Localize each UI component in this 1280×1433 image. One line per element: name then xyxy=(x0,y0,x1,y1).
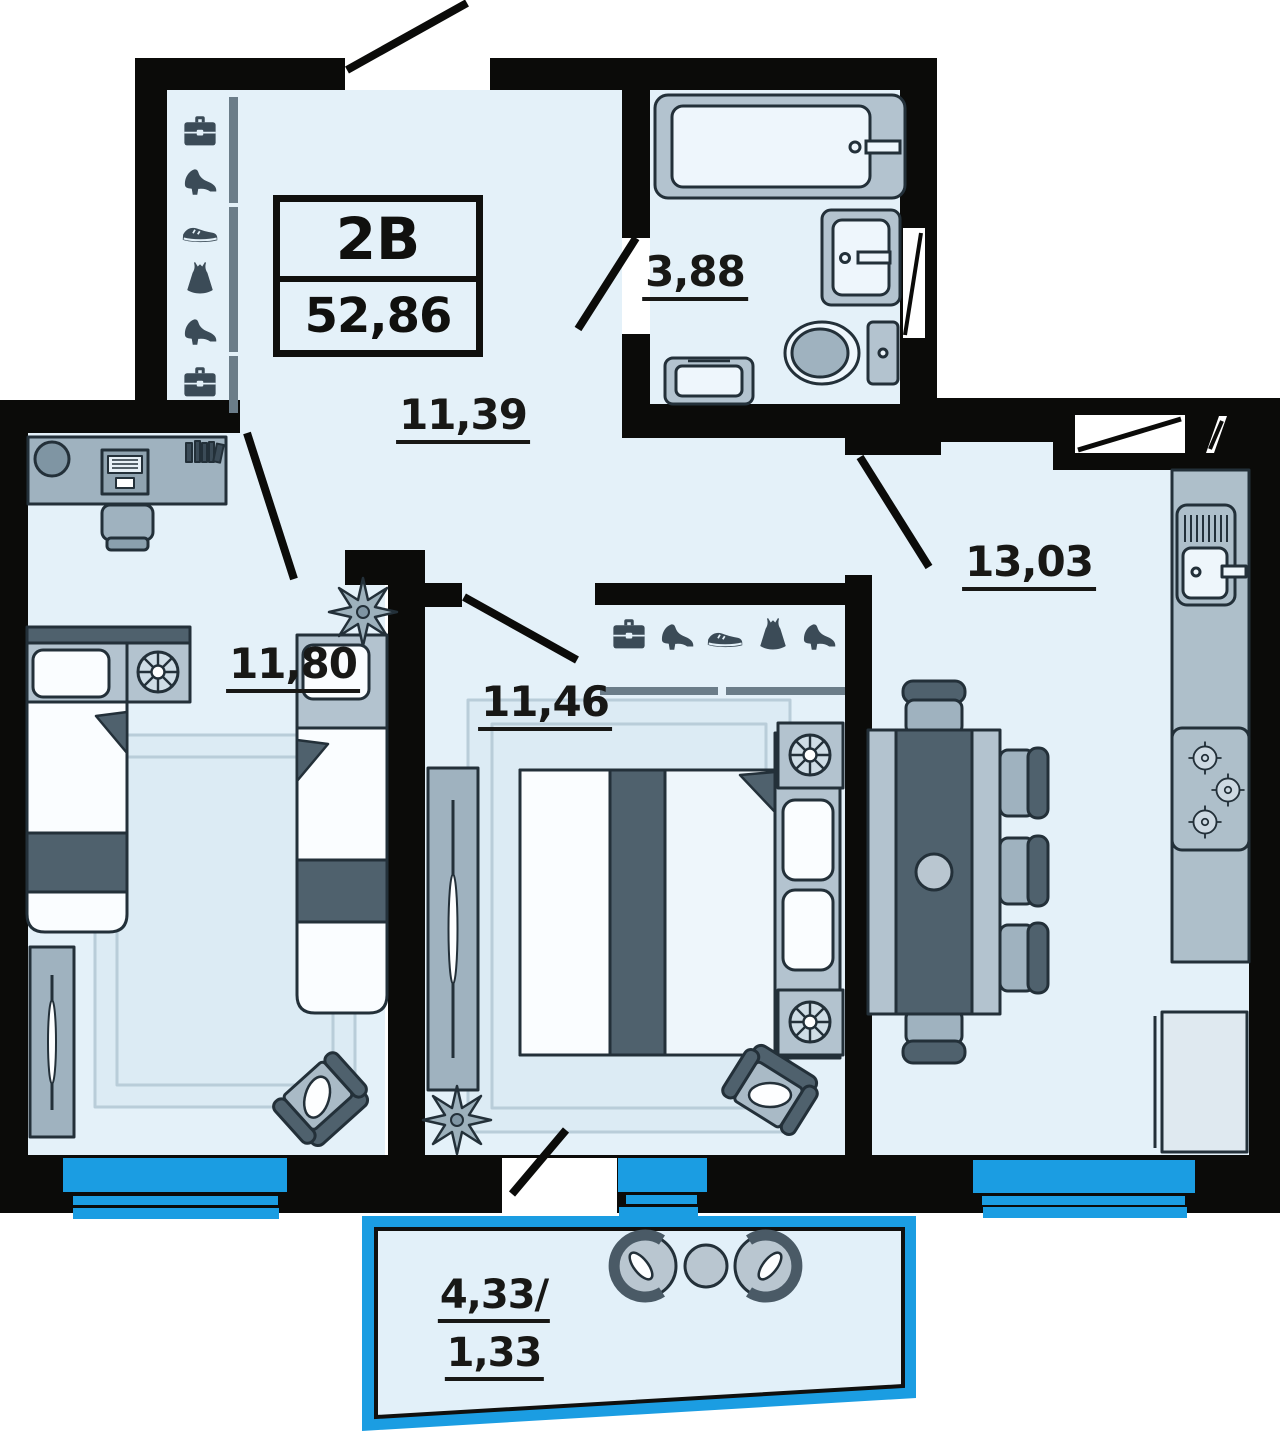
bathroom-area-label: 3,88 xyxy=(642,251,748,301)
bathtub-icon xyxy=(655,95,905,198)
title-box: 2В 52,86 xyxy=(273,195,483,357)
kitchen-door xyxy=(860,457,929,567)
windows xyxy=(63,1158,1195,1219)
dining-table xyxy=(868,681,1048,1063)
floor-plan: 2В 52,86 11,39 3,88 13,03 11,80 11,46 4,… xyxy=(0,0,1280,1433)
plant-icon xyxy=(423,1086,491,1154)
bathroom-door xyxy=(578,238,636,329)
plant-icon xyxy=(329,578,397,646)
hall-wardrobe-icons xyxy=(183,116,218,396)
bedroom2-window xyxy=(618,1158,707,1192)
heel-icon xyxy=(804,624,835,649)
balcony-area-full: 4,33/ xyxy=(438,1275,550,1323)
bed-headboard xyxy=(27,627,190,644)
heel-icon xyxy=(662,624,693,649)
total-area-label: 52,86 xyxy=(280,282,476,350)
balcony-area-label: 4,33/ 1,33 xyxy=(438,1275,550,1381)
balcony-chair-right xyxy=(735,1235,797,1297)
stool-icon xyxy=(35,442,69,476)
bedroom1-furniture xyxy=(27,437,387,1153)
toilet-icon xyxy=(785,322,898,384)
bedroom2-furniture xyxy=(428,700,843,1137)
computer-icon xyxy=(102,450,148,494)
bedroom2-area-label: 11,46 xyxy=(478,681,612,731)
dress-icon xyxy=(760,618,786,649)
balcony-table xyxy=(685,1245,727,1287)
washbasin-icon xyxy=(822,210,900,305)
briefcase-icon xyxy=(184,116,215,145)
dresser xyxy=(428,768,478,1090)
bedroom2-wardrobe xyxy=(600,687,845,695)
briefcase-icon xyxy=(613,619,644,648)
briefcase-icon xyxy=(184,367,215,396)
kitchen-area-label: 13,03 xyxy=(962,541,1096,591)
hallway-area-label: 11,39 xyxy=(396,394,530,444)
heel-icon xyxy=(185,319,216,344)
stove-icon xyxy=(1172,728,1249,850)
sneaker-icon xyxy=(708,633,743,647)
bedroom1-area-label: 11,80 xyxy=(226,643,360,693)
dresser xyxy=(30,947,74,1137)
bedroom2-door xyxy=(464,597,577,660)
nightstand xyxy=(127,643,190,702)
vent-shaft-icons xyxy=(903,228,1227,453)
hall-wardrobe xyxy=(229,97,238,413)
nightstand-top xyxy=(778,723,843,788)
sneaker-icon xyxy=(183,228,218,242)
desk-chair xyxy=(102,505,153,540)
single-bed-left xyxy=(27,643,127,932)
balcony-chair-left xyxy=(614,1235,676,1297)
bedroom1-window xyxy=(63,1158,287,1192)
washing-machine-icon xyxy=(665,358,753,404)
fridge-icon xyxy=(1155,1012,1247,1152)
kitchen-sink-icon xyxy=(1177,505,1246,605)
balcony-area-reduced: 1,33 xyxy=(445,1333,544,1381)
furniture-layer xyxy=(0,0,1280,1433)
bedroom1-door xyxy=(247,433,294,579)
books-icon xyxy=(186,441,224,463)
kitchen-window xyxy=(973,1160,1195,1193)
heel-icon xyxy=(185,169,216,194)
nightstand-bottom xyxy=(778,990,843,1055)
unit-type-label: 2В xyxy=(280,202,476,282)
dress-icon xyxy=(187,262,213,293)
bedroom2-wardrobe-icons xyxy=(613,618,835,650)
